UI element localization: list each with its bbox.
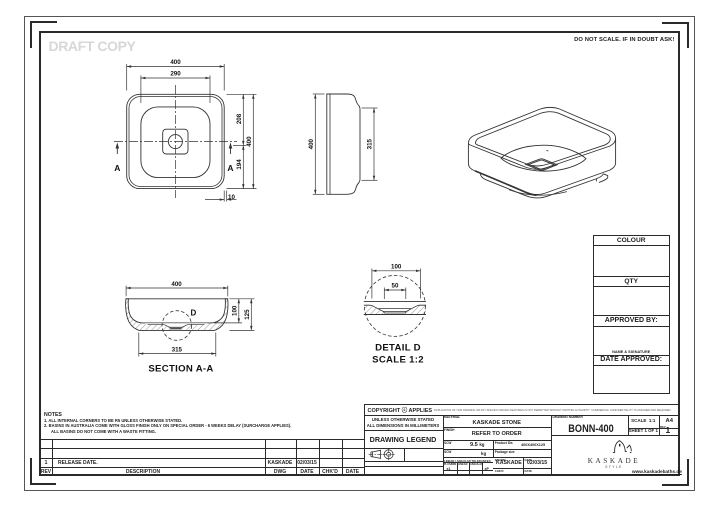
svg-text:SECTION A-A: SECTION A-A (148, 364, 213, 375)
svg-text:DETAIL D: DETAIL D (375, 343, 421, 354)
svg-text:A: A (114, 163, 120, 173)
svg-text:290: 290 (170, 71, 181, 78)
svg-text:315: 315 (172, 346, 183, 353)
svg-text:SCALE 1:2: SCALE 1:2 (372, 355, 424, 366)
svg-text:100: 100 (231, 305, 238, 316)
svg-text:100: 100 (391, 264, 402, 271)
svg-text:D: D (191, 309, 197, 318)
svg-text:400: 400 (308, 138, 315, 149)
svg-text:10: 10 (228, 194, 235, 201)
svg-text:50: 50 (392, 283, 399, 290)
svg-text:A: A (227, 163, 233, 173)
svg-text:400: 400 (171, 281, 182, 288)
svg-text:194: 194 (236, 159, 243, 170)
svg-text:400: 400 (246, 136, 253, 147)
svg-text:400: 400 (170, 59, 181, 66)
svg-text:315: 315 (367, 138, 374, 149)
svg-text:208: 208 (236, 113, 243, 124)
svg-text:125: 125 (244, 309, 251, 320)
